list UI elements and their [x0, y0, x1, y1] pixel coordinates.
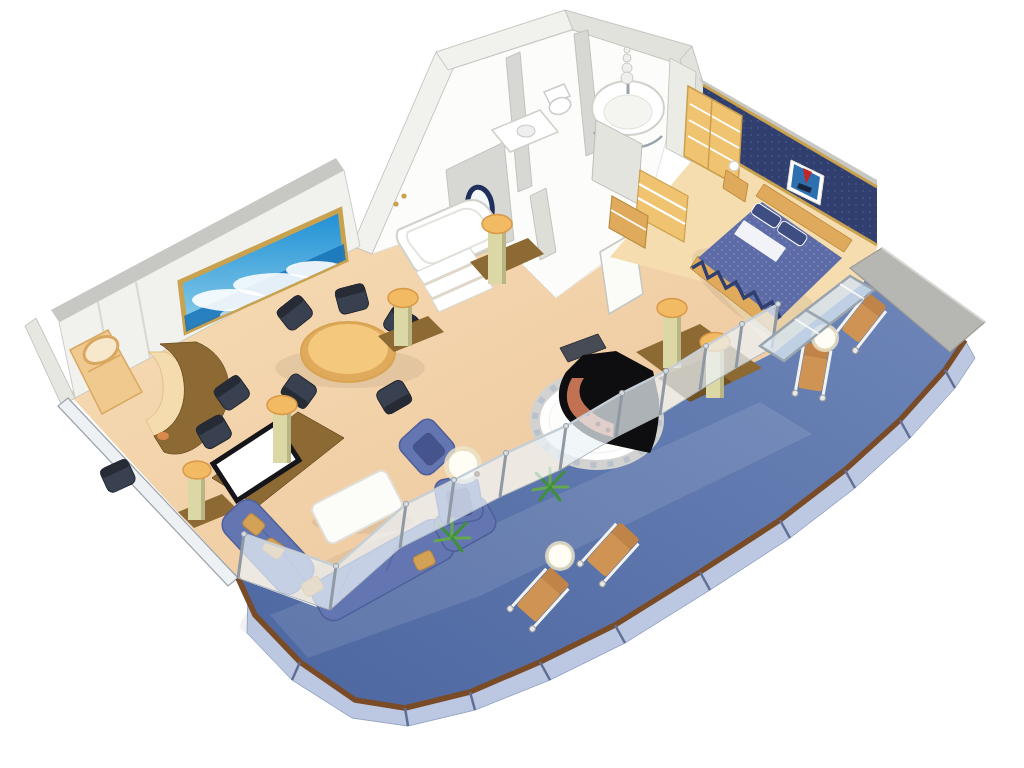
entry-door-handle: [393, 201, 398, 206]
dining-table-top: [308, 324, 388, 374]
suite-floor-plan-illustration: [0, 0, 1024, 768]
balcony-side-table-1: [545, 541, 575, 571]
entry-door-handle: [401, 193, 406, 198]
suite-floor-plan-page: [0, 0, 1024, 768]
sink-basin: [517, 125, 535, 137]
table-lamp: [729, 161, 739, 171]
desk-chair: [99, 458, 137, 494]
fruit-bowl: [157, 432, 169, 440]
